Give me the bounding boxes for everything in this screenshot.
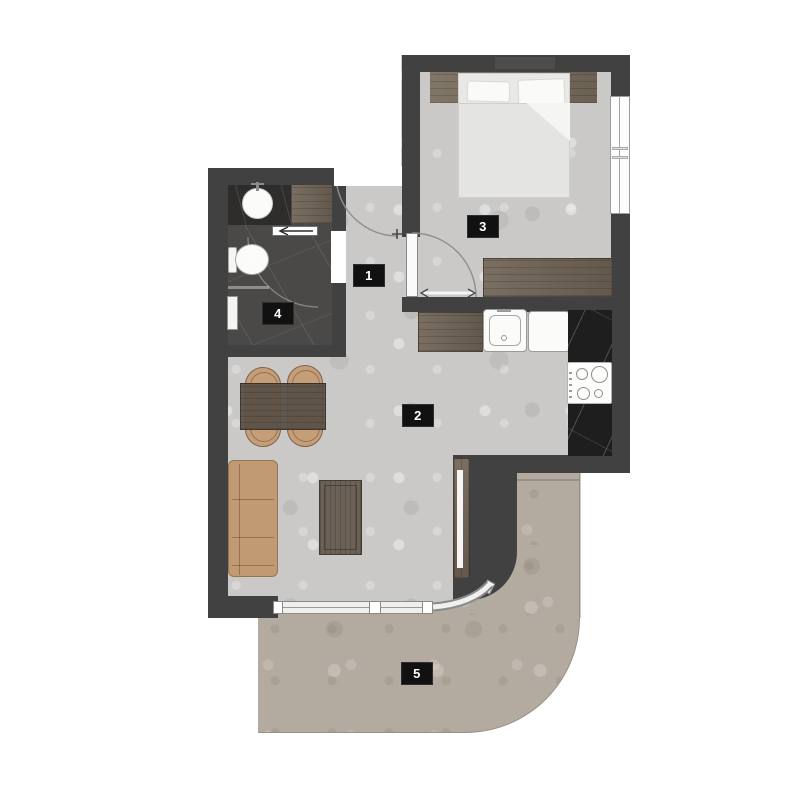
entry-door-stop-icon xyxy=(392,229,402,239)
bedroom-door-arc xyxy=(412,233,476,297)
room-label-3: 3 xyxy=(467,215,499,238)
entry-door-arc xyxy=(337,186,398,236)
room-label-5: 5 xyxy=(401,662,433,685)
room-label-4: 4 xyxy=(262,302,294,325)
room-label-1: 1 xyxy=(353,264,385,287)
room-label-2: 2 xyxy=(402,404,434,427)
slide-arrow-icon xyxy=(280,227,313,235)
floor-plan: 1 2 3 4 5 xyxy=(0,0,800,800)
bathroom-door-arc xyxy=(248,237,318,307)
plan-annotations xyxy=(0,0,800,800)
